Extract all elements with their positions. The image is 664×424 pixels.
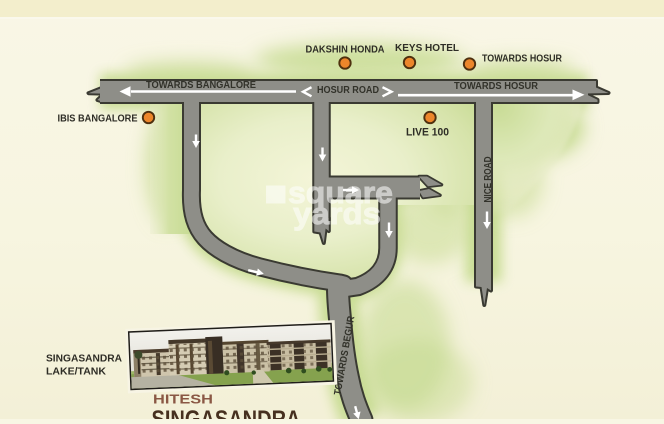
svg-text:HOSUR ROAD: HOSUR ROAD xyxy=(317,85,379,96)
svg-text:KEYS HOTEL: KEYS HOTEL xyxy=(395,43,459,54)
svg-text:HITESH: HITESH xyxy=(153,392,213,407)
svg-text:IBIS BANGALORE: IBIS BANGALORE xyxy=(58,114,138,125)
svg-text:DAKSHIN HONDA: DAKSHIN HONDA xyxy=(306,45,385,56)
svg-text:TOWARDS HOSUR: TOWARDS HOSUR xyxy=(454,81,539,92)
svg-text:SINGASANDRA: SINGASANDRA xyxy=(152,406,301,419)
svg-text:LIVE 100: LIVE 100 xyxy=(406,127,449,139)
svg-text:NICE ROAD: NICE ROAD xyxy=(483,157,494,203)
svg-text:SINGASANDRA: SINGASANDRA xyxy=(46,353,122,365)
svg-text:yards: yards xyxy=(293,196,381,231)
svg-text:TOWARDS BANGALORE: TOWARDS BANGALORE xyxy=(146,80,256,91)
svg-text:TOWARDS HOSUR: TOWARDS HOSUR xyxy=(482,54,563,65)
svg-text:LAKE/TANK: LAKE/TANK xyxy=(46,366,106,378)
